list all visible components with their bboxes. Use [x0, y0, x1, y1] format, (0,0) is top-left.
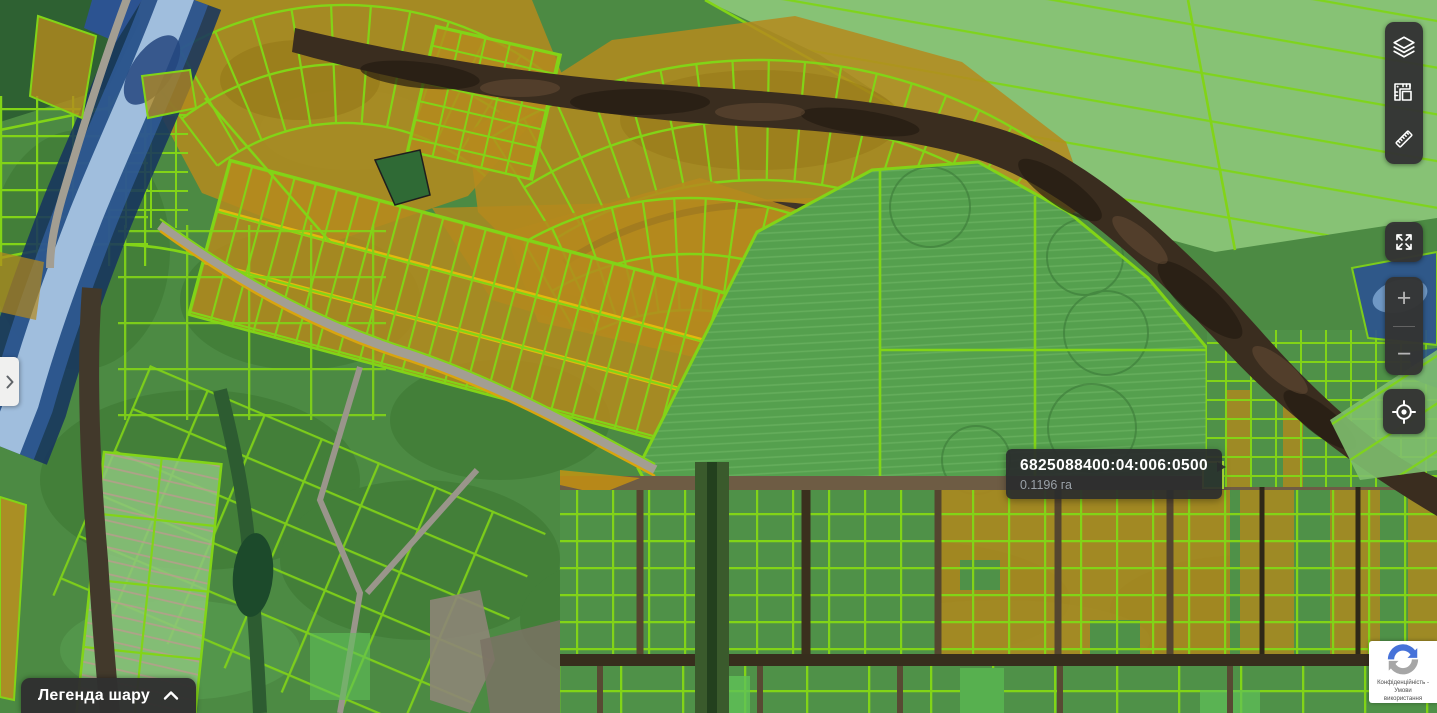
- chevron-right-icon: [5, 374, 15, 390]
- locate-button[interactable]: [1383, 389, 1425, 434]
- fullscreen-button[interactable]: [1385, 222, 1423, 262]
- recaptcha-badge[interactable]: Конфіденційність - Умови використання: [1369, 641, 1437, 703]
- recaptcha-terms-text: Конфіденційність - Умови використання: [1369, 679, 1437, 703]
- zoom-divider: [1393, 326, 1415, 327]
- fullscreen-icon: [1394, 232, 1414, 252]
- measure-area-icon: [1392, 81, 1416, 105]
- legend-button-label: Легенда шару: [38, 687, 150, 705]
- parcel-tooltip: 6825088400:04:006:0500 0.1196 га: [1006, 449, 1222, 499]
- sidebar-toggle-button[interactable]: [0, 357, 19, 406]
- zoom-control: + −: [1385, 277, 1423, 375]
- fullscreen-control: [1385, 222, 1423, 262]
- layers-button[interactable]: [1385, 24, 1423, 70]
- map-canvas[interactable]: [0, 0, 1437, 713]
- tooltip-area: 0.1196 га: [1020, 478, 1208, 492]
- map-app: { "tooltip": { "cadastral_number": "6825…: [0, 0, 1437, 713]
- legend-button[interactable]: Легенда шару: [21, 678, 196, 713]
- measure-distance-button[interactable]: [1385, 116, 1423, 162]
- measure-distance-icon: [1392, 127, 1416, 151]
- zoom-out-button[interactable]: −: [1385, 333, 1423, 375]
- locate-icon: [1391, 399, 1417, 425]
- measure-area-button[interactable]: [1385, 70, 1423, 116]
- tooltip-cadastral-number: 6825088400:04:006:0500: [1020, 457, 1208, 475]
- locate-control: [1383, 389, 1425, 434]
- chevron-up-icon: [163, 690, 179, 701]
- zoom-in-button[interactable]: +: [1385, 277, 1423, 319]
- layers-icon: [1391, 34, 1417, 60]
- map-tools-panel: [1385, 22, 1423, 164]
- recaptcha-icon: [1385, 641, 1421, 678]
